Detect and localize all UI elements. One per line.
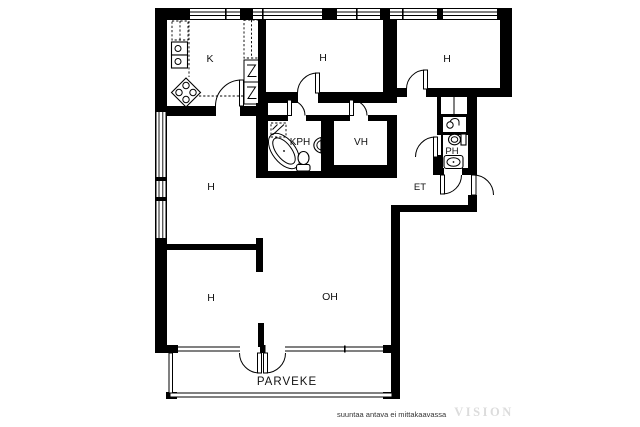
window: [285, 346, 383, 353]
toilet-wc-icon: [449, 134, 467, 145]
room-label-closet: VH: [354, 137, 368, 148]
wall-segment: [437, 88, 441, 135]
wall-segment: [468, 195, 477, 212]
window: [157, 112, 166, 238]
kitchen-door: [216, 80, 244, 106]
window: [443, 9, 497, 19]
wardrobe-icon: [244, 20, 259, 104]
room-label-bedroom-right: H: [443, 53, 451, 65]
room-label-bedroom-bottom: H: [207, 292, 215, 304]
balcony-door-left: [240, 353, 262, 373]
window: [253, 9, 322, 19]
vendor-watermark: VISION: [454, 405, 513, 419]
room-label-bedroom-middle: H: [319, 52, 327, 64]
kitchen-counter-line: [189, 21, 244, 96]
wall-segment: [397, 88, 407, 97]
bedroom-middle-door: [298, 73, 320, 93]
balcony-door-right: [264, 353, 286, 373]
wall-segment: [433, 155, 441, 175]
bedroom-right-door: [407, 70, 428, 89]
wall-segment: [260, 345, 266, 353]
room-label-hall: H: [207, 181, 215, 193]
room-label-entry: ET: [414, 182, 426, 193]
toilet-sink-icon: [444, 156, 463, 169]
room-label-toilet: PH: [445, 146, 458, 157]
room-label-living-room: OH: [322, 291, 338, 303]
window: [190, 9, 240, 19]
wall-segment: [383, 18, 397, 103]
window: [337, 9, 380, 19]
window: [178, 346, 240, 353]
floor-plan-page: K H H KPH VH PH ET H H OH PARVEKE suunta…: [0, 0, 640, 427]
wall-segment: [167, 244, 256, 250]
window: [390, 9, 437, 19]
wall-segment: [391, 205, 473, 212]
wall-segment: [391, 205, 400, 397]
wall-segment: [240, 106, 258, 116]
stove-icon: [172, 78, 201, 107]
wall-segment: [167, 106, 216, 116]
kitchen-sink-icon: [172, 42, 188, 68]
room-label-balcony: PARVEKE: [257, 376, 317, 388]
wall-segment: [162, 345, 178, 353]
balcony-railing: [169, 353, 392, 397]
door-opening: [288, 115, 306, 122]
disclaimer-text: suuntaa antava ei mittakaavassa: [337, 410, 447, 419]
bathroom-toilet-icon: [297, 152, 311, 172]
wall-segment: [258, 323, 264, 347]
wall-segment: [256, 238, 263, 272]
room-label-bathroom: KPH: [290, 137, 311, 148]
room-label-kitchen: K: [206, 53, 213, 65]
kitchen-cabinet-icon: [172, 21, 188, 40]
walls: [155, 8, 512, 399]
front-door: [472, 175, 494, 195]
door-opening: [444, 168, 462, 176]
windows: [157, 9, 498, 397]
floor-plan-drawing: K H H KPH VH PH ET H H OH PARVEKE suunta…: [0, 0, 640, 427]
entry-hall-door: [416, 137, 438, 157]
toilet-door: [441, 175, 462, 194]
wall-segment: [500, 8, 512, 97]
